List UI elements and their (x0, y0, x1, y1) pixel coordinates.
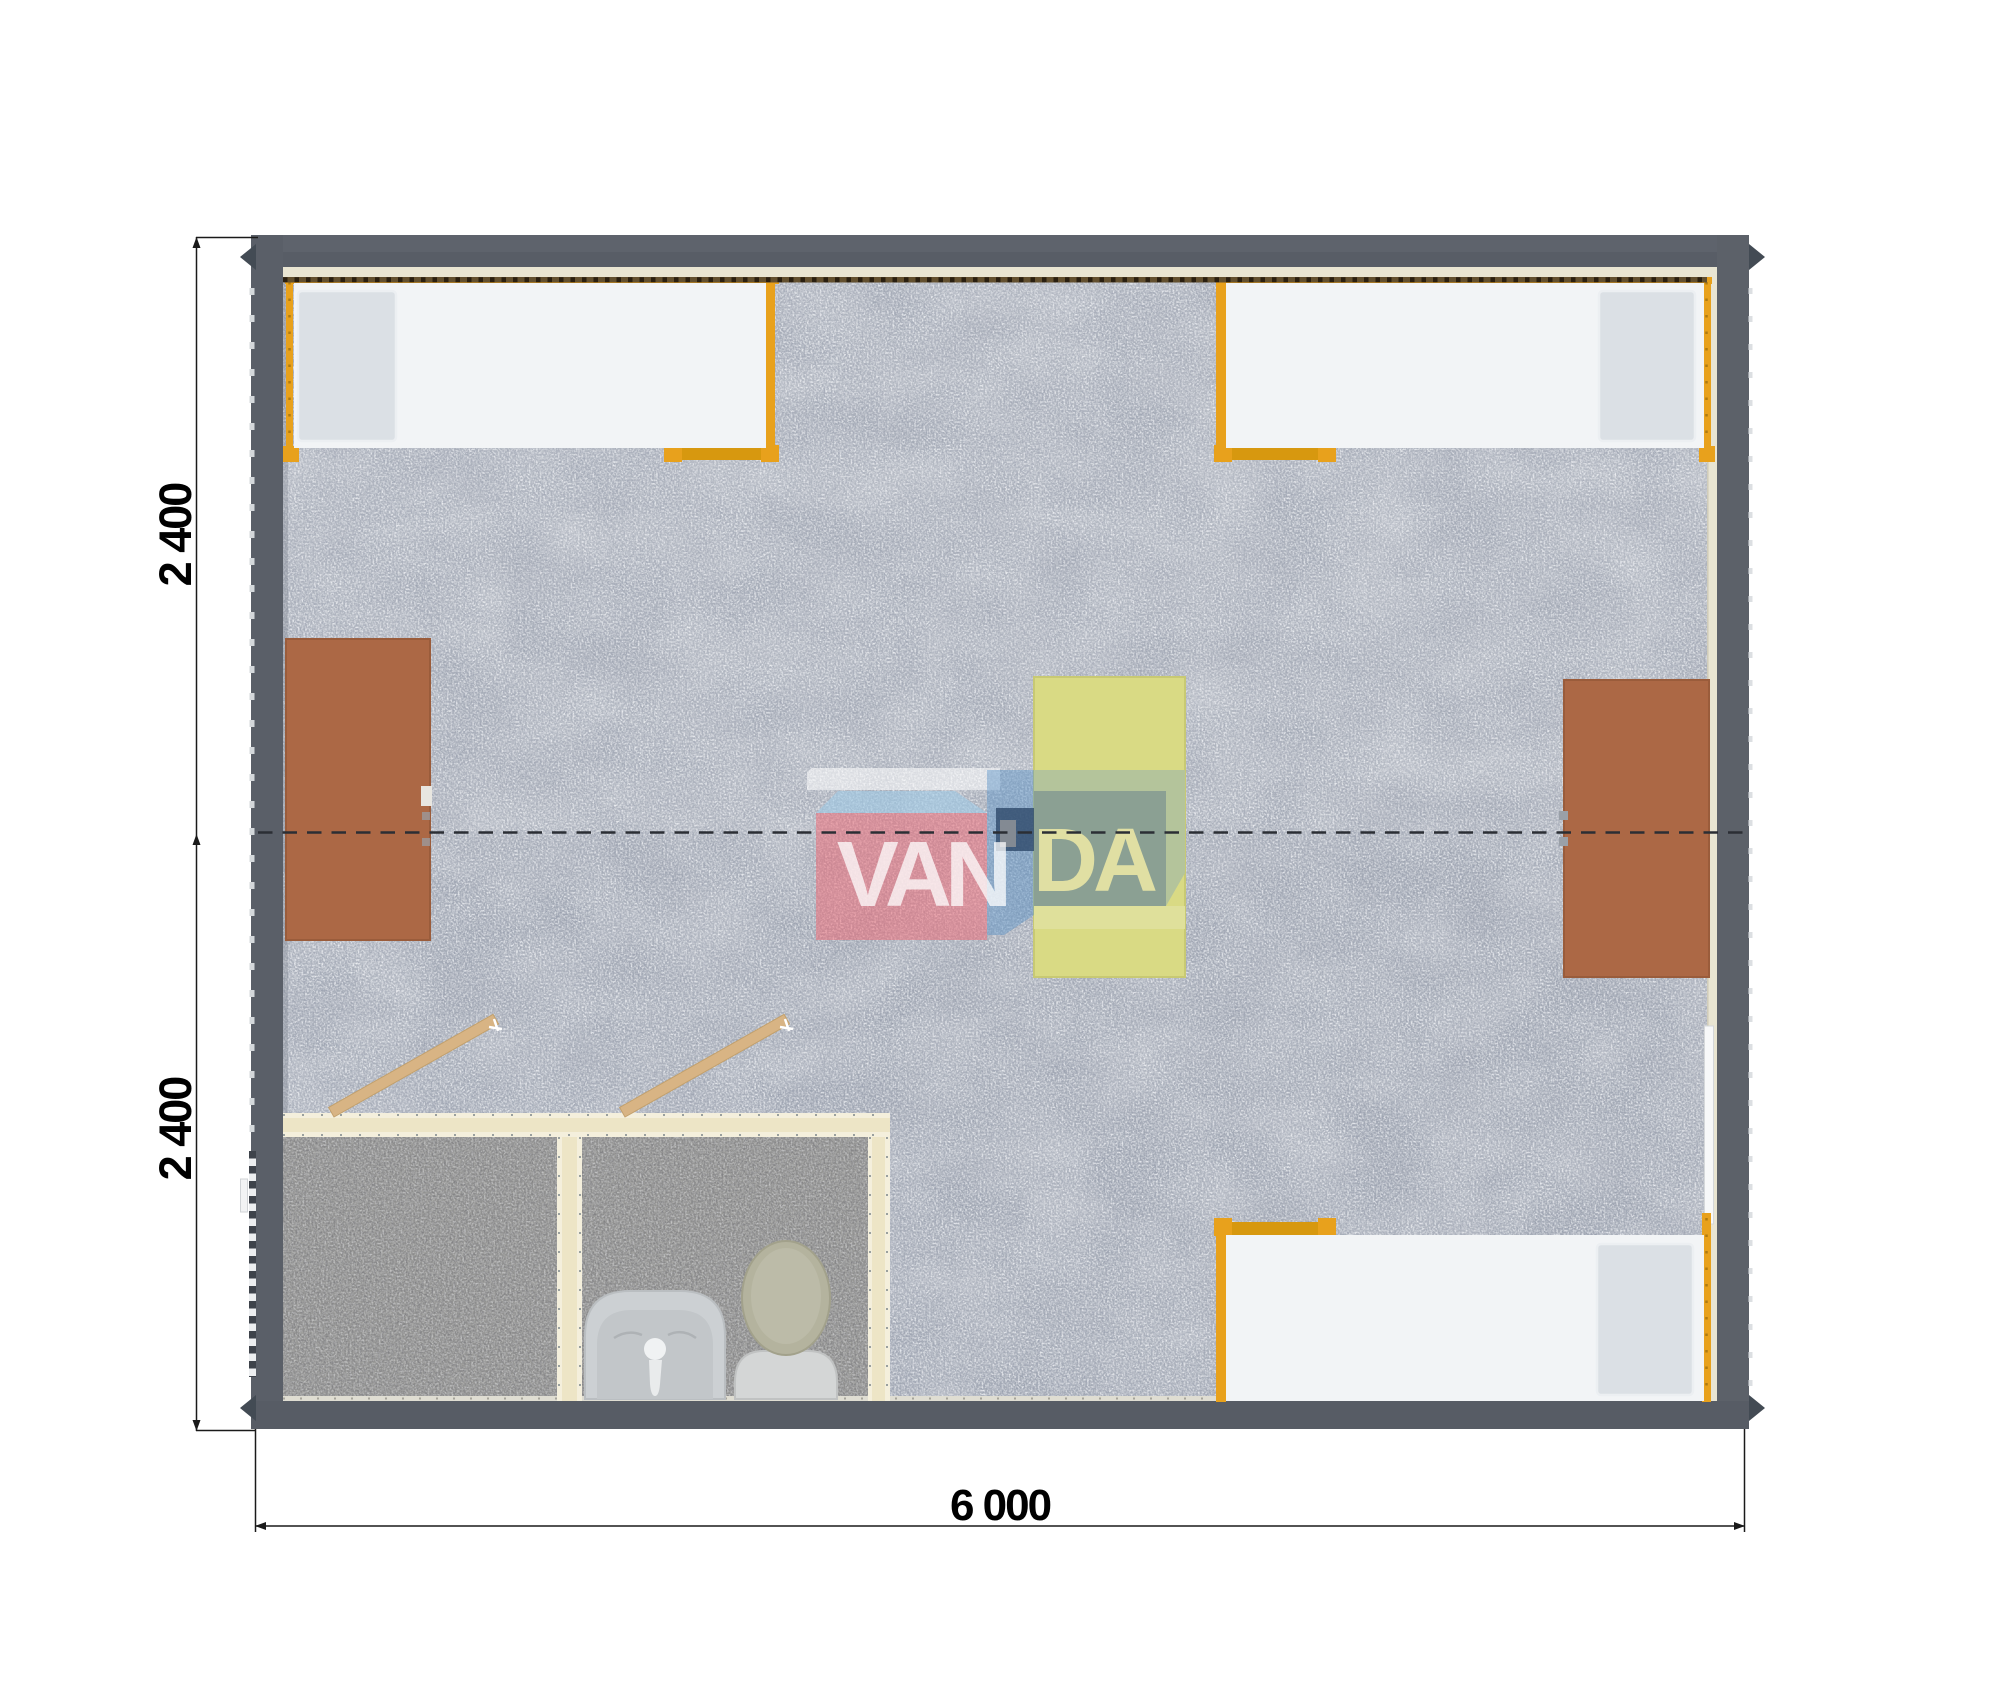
svg-text:2 400: 2 400 (150, 483, 201, 587)
svg-text:DA: DA (1033, 811, 1156, 911)
svg-text:VAN: VAN (837, 822, 1006, 926)
svg-text:6 000: 6 000 (950, 1481, 1051, 1530)
svg-text:2 400: 2 400 (150, 1077, 201, 1181)
